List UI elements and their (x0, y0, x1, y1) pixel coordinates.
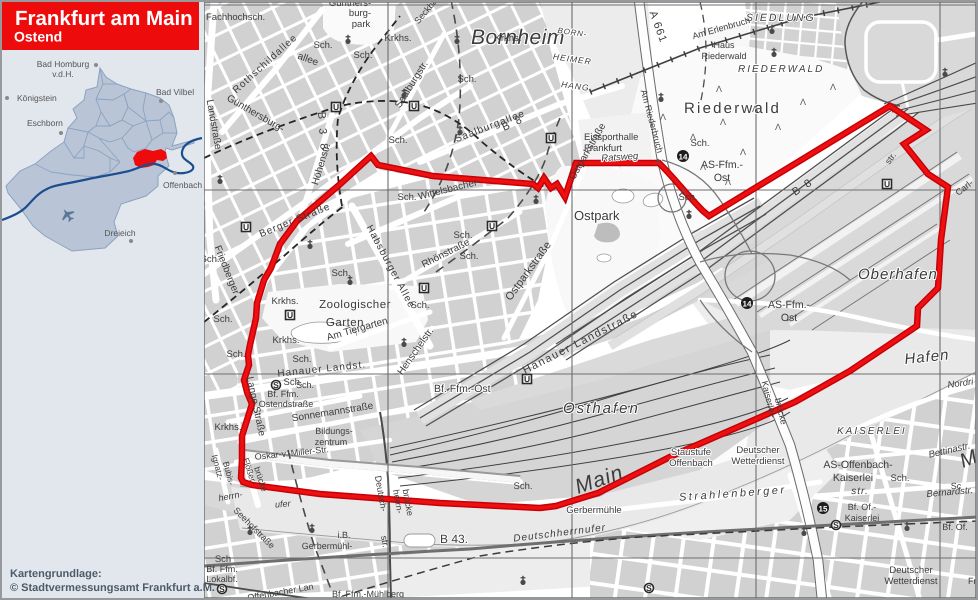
svg-text:Wetterdienst: Wetterdienst (731, 456, 785, 467)
svg-text:Λ: Λ (740, 147, 746, 157)
svg-text:RIEDERWALD: RIEDERWALD (738, 64, 824, 75)
svg-text:Offenbach: Offenbach (669, 458, 713, 469)
svg-text:Oberhafen: Oberhafen (858, 266, 938, 283)
svg-text:Staustufe: Staustufe (671, 447, 711, 458)
svg-text:Sc: Sc (951, 481, 962, 491)
svg-text:Sch.: Sch. (213, 314, 232, 325)
svg-text:Ostpark: Ostpark (574, 208, 620, 223)
svg-text:Sch.: Sch. (457, 74, 476, 85)
svg-text:Gerbermühle: Gerbermühle (566, 505, 621, 516)
svg-text:Λ: Λ (655, 157, 661, 167)
svg-text:Sch.: Sch. (397, 192, 416, 203)
svg-text:Bf. Ffm.: Bf. Ffm. (206, 564, 238, 574)
svg-text:Sch.: Sch. (292, 354, 311, 365)
svg-text:Λ: Λ (752, 104, 758, 114)
svg-text:Sch.: Sch. (388, 135, 407, 146)
svg-text:Bf. Of.: Bf. Of. (942, 522, 968, 532)
svg-text:Kaiserlei: Kaiserlei (833, 472, 873, 484)
svg-text:Ostend: Ostend (14, 29, 62, 45)
svg-text:Deutscher: Deutscher (736, 445, 779, 456)
svg-text:AS-Ffm.-: AS-Ffm.- (768, 299, 810, 311)
svg-text:Λ: Λ (690, 132, 696, 142)
svg-text:Krkhs.: Krkhs. (215, 422, 242, 433)
svg-text:Haus: Haus (713, 40, 735, 50)
svg-text:Riederwald: Riederwald (701, 51, 746, 61)
svg-text:Bf. Ffm.-Ost: Bf. Ffm.-Ost (434, 383, 491, 395)
svg-text:Bad Vilbel: Bad Vilbel (156, 87, 194, 97)
svg-text:Λ: Λ (775, 122, 781, 132)
svg-text:Osthafen: Osthafen (563, 400, 640, 417)
svg-text:i.B.: i.B. (337, 530, 350, 540)
svg-text:Gerbermühl-: Gerbermühl- (302, 541, 353, 551)
svg-text:Zoologischer: Zoologischer (319, 299, 391, 311)
svg-text:Ostendstraße: Ostendstraße (259, 399, 314, 409)
svg-text:© Stadtvermessungsamt Frankfur: © Stadtvermessungsamt Frankfurt a.M. (10, 582, 215, 594)
svg-text:AS-Offenbach-: AS-Offenbach- (823, 459, 893, 471)
svg-text:Eissporthalle: Eissporthalle (584, 132, 638, 143)
svg-text:Λ: Λ (660, 112, 666, 122)
svg-text:Bf. Of.-: Bf. Of.- (848, 502, 877, 512)
svg-text:Λ: Λ (720, 117, 726, 127)
svg-text:Λ: Λ (680, 187, 686, 197)
svg-text:Λ: Λ (800, 97, 806, 107)
svg-text:14: 14 (679, 152, 688, 161)
svg-text:Fachhochsch.: Fachhochsch. (206, 12, 265, 23)
svg-text:Offenbach: Offenbach (163, 180, 202, 190)
svg-text:Krkhs.: Krkhs. (272, 296, 299, 307)
svg-text:Sch.: Sch. (890, 473, 909, 484)
svg-text:Bildungs-: Bildungs- (315, 426, 353, 436)
svg-text:Sch.: Sch. (226, 349, 245, 360)
svg-text:14: 14 (743, 299, 752, 308)
svg-text:ufer: ufer (275, 498, 292, 509)
svg-text:Krkhs.: Krkhs. (385, 33, 412, 44)
svg-text:Sch.: Sch. (313, 40, 332, 51)
svg-text:str.: str. (379, 535, 391, 549)
svg-text:Ost: Ost (781, 312, 797, 324)
svg-text:Sch.: Sch. (459, 251, 478, 262)
svg-text:15: 15 (819, 504, 828, 513)
svg-text:zentrum: zentrum (315, 437, 348, 447)
svg-text:Königstein: Königstein (17, 93, 57, 103)
svg-text:Λ: Λ (700, 162, 706, 172)
svg-text:Wetterdienst: Wetterdienst (884, 576, 938, 587)
svg-text:Bf. Ffm.: Bf. Ffm. (267, 389, 299, 399)
svg-text:Frankfurt: Frankfurt (584, 143, 622, 154)
svg-text:str.: str. (851, 486, 869, 497)
svg-text:Kartengrundlage:: Kartengrundlage: (10, 568, 102, 580)
svg-text:Dreieich: Dreieich (104, 228, 135, 238)
svg-text:Garten: Garten (326, 317, 364, 329)
svg-text:burg-: burg- (349, 8, 371, 19)
svg-text:v.d.H.: v.d.H. (52, 69, 74, 79)
svg-text:Eschborn: Eschborn (27, 118, 63, 128)
svg-text:Λ: Λ (830, 82, 836, 92)
svg-text:KAISERLEI: KAISERLEI (837, 426, 907, 437)
svg-text:Krkhs.: Krkhs. (495, 33, 522, 44)
svg-text:park: park (352, 19, 371, 30)
svg-text:Λ: Λ (725, 177, 731, 187)
svg-text:AS-Ffm.-: AS-Ffm.- (701, 159, 743, 171)
svg-text:Frankfurt am Main: Frankfurt am Main (15, 7, 193, 30)
svg-text:Krkhs.: Krkhs. (273, 335, 300, 346)
svg-text:B 43.: B 43. (440, 532, 468, 546)
svg-text:Sch.: Sch. (513, 481, 532, 492)
svg-text:Λ: Λ (716, 84, 722, 94)
svg-text:Deutscher: Deutscher (889, 565, 932, 576)
svg-text:Kaiserlei: Kaiserlei (845, 513, 880, 523)
svg-text:Sch.: Sch. (353, 50, 372, 61)
svg-text:Bad Homburg: Bad Homburg (37, 59, 90, 69)
svg-text:Riederwald: Riederwald (684, 100, 781, 117)
svg-text:SIEDLUNG: SIEDLUNG (746, 12, 816, 24)
